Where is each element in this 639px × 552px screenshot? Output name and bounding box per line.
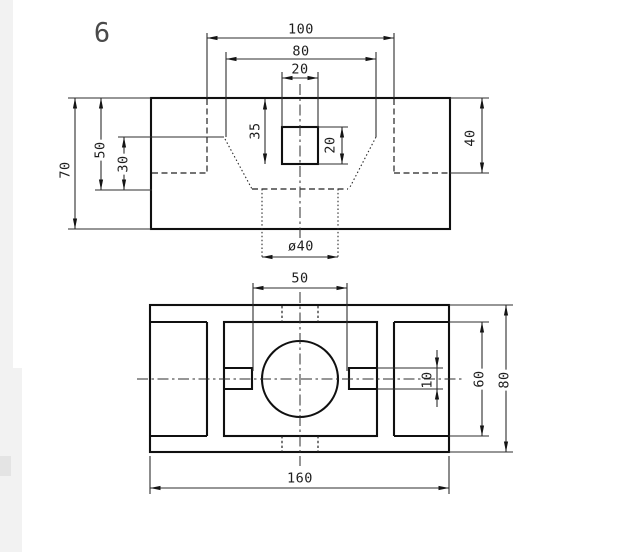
dim-label-front-80: 80 xyxy=(292,45,309,59)
arrowhead xyxy=(99,180,103,191)
arrowhead xyxy=(73,98,77,109)
arrowhead xyxy=(263,99,267,110)
arrowhead xyxy=(504,305,508,316)
dim-label-front-dia40: ø40 xyxy=(288,240,314,254)
arrowhead xyxy=(480,322,484,333)
cad-drawing-sheet: 6 100 80 20 70 50 30 35 20 40 ø40 50 10 … xyxy=(0,0,639,552)
dimension-arrowheads xyxy=(73,36,508,490)
arrowhead xyxy=(435,389,439,400)
arrowhead xyxy=(337,286,348,290)
arrowhead xyxy=(150,486,161,490)
engineering-drawing xyxy=(0,0,639,552)
arrowhead xyxy=(73,219,77,230)
dim-label-front-100: 100 xyxy=(288,23,314,37)
arrowhead xyxy=(504,442,508,453)
arrowhead xyxy=(366,57,377,61)
arrowhead xyxy=(328,255,339,259)
dim-label-front-20-top: 20 xyxy=(291,63,308,77)
arrowhead xyxy=(122,180,126,191)
dim-label-front-30: 30 xyxy=(117,153,131,174)
dim-label-plan-60: 60 xyxy=(473,368,487,389)
arrowhead xyxy=(263,154,267,165)
plan-centerlines xyxy=(137,292,462,466)
dim-label-plan-50: 50 xyxy=(291,272,308,286)
arrowhead xyxy=(439,486,450,490)
dim-label-front-20-right: 20 xyxy=(324,136,338,153)
arrowhead xyxy=(262,255,273,259)
arrowhead xyxy=(435,358,439,369)
front-dim-lines xyxy=(68,33,489,257)
arrowhead xyxy=(207,36,218,40)
sheet-number: 6 xyxy=(94,18,110,49)
arrowhead xyxy=(253,286,264,290)
arrowhead xyxy=(308,76,319,80)
plan-dim-lines xyxy=(150,283,513,494)
arrowhead xyxy=(480,163,484,174)
arrowhead xyxy=(340,127,344,138)
arrowhead xyxy=(122,137,126,148)
dim-label-plan-160: 160 xyxy=(287,472,313,486)
dim-label-front-50: 50 xyxy=(94,139,108,160)
arrowhead xyxy=(226,57,237,61)
dim-label-front-40: 40 xyxy=(464,129,478,146)
arrowhead xyxy=(480,98,484,109)
arrowhead xyxy=(480,426,484,437)
dim-label-front-35: 35 xyxy=(249,122,263,139)
pocket-taper-left xyxy=(225,139,252,189)
dim-label-plan-80: 80 xyxy=(498,369,512,390)
arrowhead xyxy=(340,154,344,165)
dim-label-front-70: 70 xyxy=(59,161,73,178)
dim-label-plan-10: 10 xyxy=(421,371,435,388)
arrowhead xyxy=(99,98,103,109)
arrowhead xyxy=(384,36,395,40)
pocket-taper-right xyxy=(349,137,376,189)
